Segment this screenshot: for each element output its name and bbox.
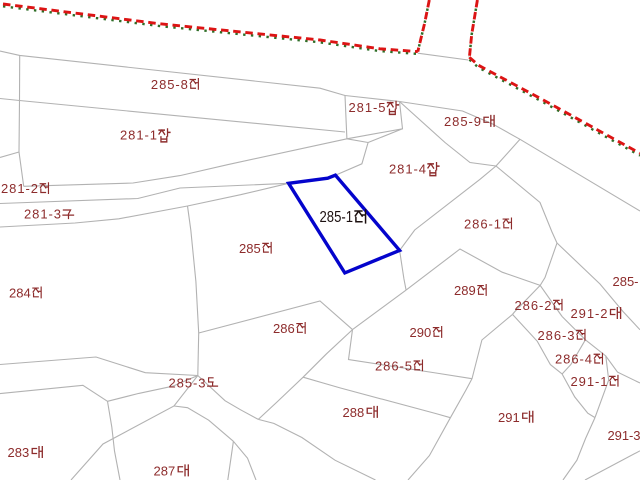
svg-text:286-2: 286-2	[515, 298, 552, 313]
svg-text:291-2: 291-2	[571, 306, 608, 321]
svg-text:290: 290	[410, 325, 432, 340]
svg-text:285-: 285-	[613, 274, 639, 289]
svg-text:285-1: 285-1	[320, 209, 354, 226]
svg-text:281-2: 281-2	[1, 181, 38, 196]
svg-text:281-1: 281-1	[120, 128, 157, 143]
svg-text:288: 288	[343, 405, 365, 420]
svg-text:287: 287	[154, 464, 176, 479]
svg-text:285-3: 285-3	[169, 376, 206, 391]
svg-text:291: 291	[498, 410, 520, 425]
svg-text:286: 286	[273, 321, 295, 336]
svg-text:286-5: 286-5	[375, 358, 412, 373]
svg-text:289: 289	[454, 283, 476, 298]
svg-text:286-3: 286-3	[538, 328, 575, 343]
svg-text:281-4: 281-4	[389, 161, 426, 176]
svg-text:281-5: 281-5	[349, 100, 386, 115]
svg-text:291-3: 291-3	[608, 428, 640, 443]
svg-text:281-3: 281-3	[24, 206, 61, 221]
svg-text:285: 285	[239, 241, 261, 256]
svg-text:286-4: 286-4	[555, 352, 592, 367]
svg-text:285-9: 285-9	[444, 114, 481, 129]
svg-text:291-1: 291-1	[571, 374, 608, 389]
svg-text:283: 283	[8, 445, 30, 460]
svg-text:284: 284	[9, 286, 31, 301]
svg-text:285-8: 285-8	[151, 77, 188, 92]
svg-text:286-1: 286-1	[464, 217, 501, 232]
